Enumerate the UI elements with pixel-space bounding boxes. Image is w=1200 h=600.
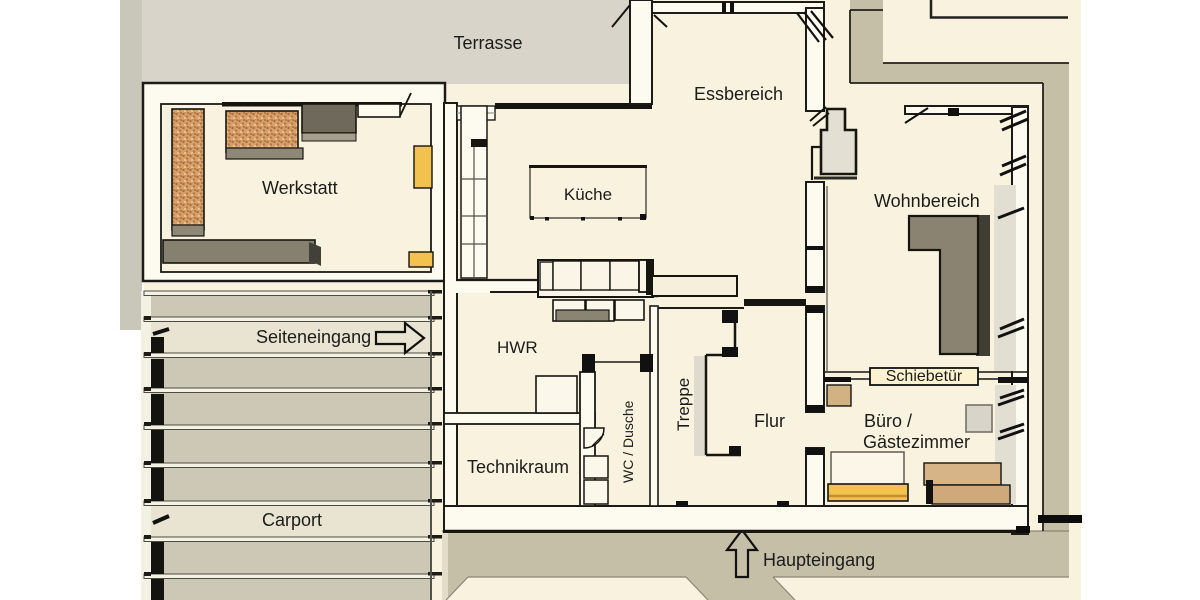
svg-text:HWR: HWR bbox=[497, 338, 538, 357]
svg-text:Wohnbereich: Wohnbereich bbox=[874, 191, 980, 211]
svg-text:Treppe: Treppe bbox=[674, 378, 693, 431]
svg-text:Gästezimmer: Gästezimmer bbox=[863, 432, 970, 452]
svg-text:Küche: Küche bbox=[564, 185, 612, 204]
svg-text:Büro /: Büro / bbox=[864, 411, 912, 431]
svg-text:Haupteingang: Haupteingang bbox=[763, 550, 875, 570]
svg-text:Schiebetür: Schiebetür bbox=[886, 368, 963, 385]
svg-text:Werkstatt: Werkstatt bbox=[262, 178, 338, 198]
svg-text:Terrasse: Terrasse bbox=[453, 33, 522, 53]
svg-text:Essbereich: Essbereich bbox=[694, 84, 783, 104]
svg-text:Technikraum: Technikraum bbox=[467, 457, 569, 477]
svg-text:Carport: Carport bbox=[262, 510, 322, 530]
svg-text:WC / Dusche: WC / Dusche bbox=[620, 400, 636, 483]
svg-text:Flur: Flur bbox=[754, 411, 785, 431]
svg-text:Seiteneingang: Seiteneingang bbox=[256, 327, 371, 347]
